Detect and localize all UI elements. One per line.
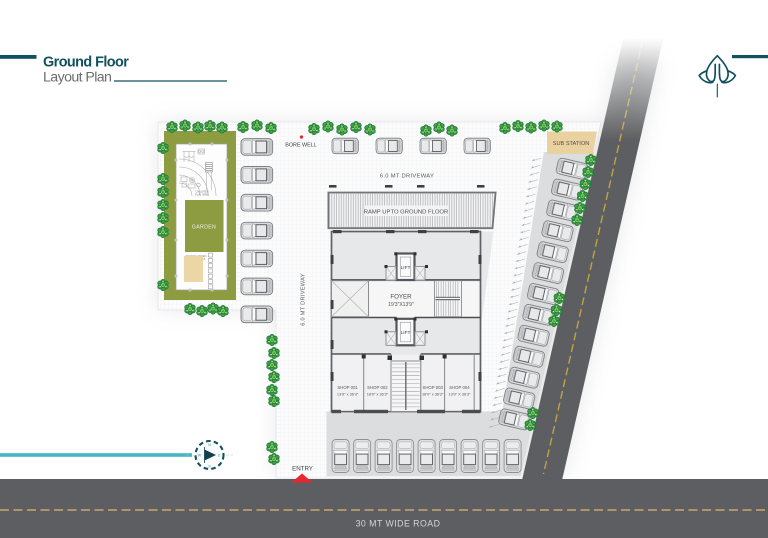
svg-text:PLAY AREA: PLAY AREA	[195, 193, 209, 197]
svg-text:W: W	[198, 454, 202, 458]
svg-text:18'0″ x 36'3″: 18'0″ x 36'3″	[367, 392, 389, 397]
svg-text:FOYER: FOYER	[390, 294, 412, 301]
svg-text:6.0 MT DRIVEWAY: 6.0 MT DRIVEWAY	[301, 273, 307, 326]
svg-text:N: N	[208, 443, 211, 447]
svg-text:Layout Plan: Layout Plan	[43, 70, 111, 86]
svg-text:ENTRY: ENTRY	[292, 466, 313, 473]
svg-text:SHOP 004: SHOP 004	[449, 385, 470, 390]
svg-text:30 MT WIDE ROAD: 30 MT WIDE ROAD	[356, 519, 441, 529]
svg-text:LIFT: LIFT	[401, 330, 411, 336]
svg-text:SHOP 003: SHOP 003	[422, 385, 443, 390]
svg-text:RAMP UPTO GROUND FLOOR: RAMP UPTO GROUND FLOOR	[364, 210, 449, 216]
svg-text:LIFT: LIFT	[401, 265, 411, 271]
svg-text:BORE WELL: BORE WELL	[285, 143, 316, 149]
svg-text:SUB STATION: SUB STATION	[553, 141, 589, 147]
svg-text:6.0 MT DRIVEWAY: 6.0 MT DRIVEWAY	[380, 174, 434, 180]
svg-text:Ground Floor: Ground Floor	[43, 55, 129, 71]
svg-text:18'0″ x 36'3″: 18'0″ x 36'3″	[422, 392, 444, 397]
svg-text:SHOP 002: SHOP 002	[367, 385, 388, 390]
svg-text:SHOP 001: SHOP 001	[337, 385, 358, 390]
svg-text:GARDEN: GARDEN	[192, 225, 216, 231]
svg-text:19'3″X13'9″: 19'3″X13'9″	[388, 302, 414, 308]
svg-text:13'9″ X 36'3″: 13'9″ X 36'3″	[448, 392, 471, 397]
svg-text:13'9″ x 36'3″: 13'9″ x 36'3″	[337, 392, 359, 397]
